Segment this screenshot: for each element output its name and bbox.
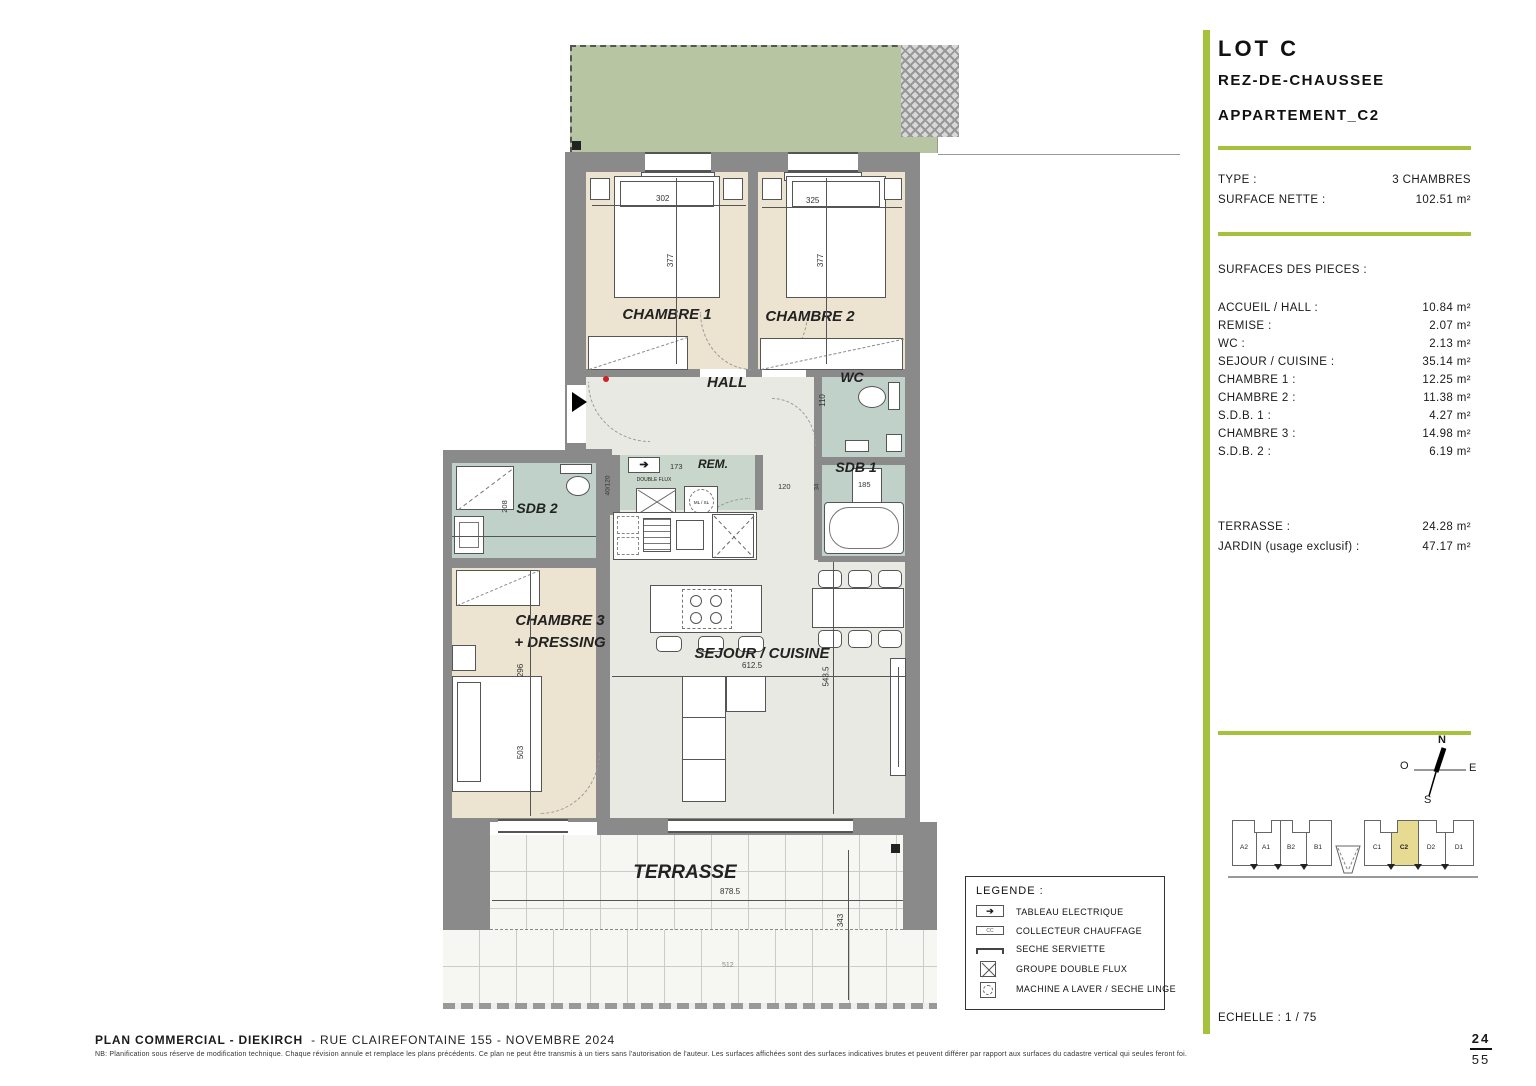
chair-icon — [878, 570, 902, 588]
net-surface-row: SURFACE NETTE : 102.51 m² — [1218, 194, 1471, 206]
compass-west: O — [1400, 760, 1409, 772]
compass-lines — [1400, 738, 1480, 808]
wall-terrace-right — [903, 822, 937, 930]
label-sdb2: SDB 2 — [497, 500, 577, 516]
towel-dryer-icon — [976, 948, 1004, 954]
lot-title: LOT C — [1218, 36, 1299, 62]
surface-label: WC : — [1218, 338, 1245, 350]
nightstand-icon — [590, 178, 610, 200]
divider-line — [1218, 731, 1471, 735]
terrace-label: TERRASSE : — [1218, 521, 1290, 533]
wall-terrace-left — [443, 815, 490, 930]
double-flux-icon — [980, 961, 996, 977]
wardrobe-icon — [456, 570, 540, 606]
dim-rem-depth: 40/120 — [604, 476, 611, 496]
compass-south: S — [1424, 794, 1431, 806]
electrical-panel-icon: ➔ — [976, 905, 1004, 917]
vanity-basin — [459, 522, 479, 548]
surface-value: 11.38 m² — [1423, 392, 1471, 404]
divider-line — [1218, 146, 1471, 150]
block-divider — [1418, 820, 1419, 866]
chair-icon — [878, 630, 902, 648]
kitchen-cabinet — [617, 537, 639, 555]
wardrobe-icon — [760, 338, 903, 370]
legend-title: LEGENDE : — [976, 885, 1044, 897]
dim-chambre3-width: 296 — [516, 664, 525, 677]
surface-value: 6.19 m² — [1429, 446, 1471, 458]
surface-row: S.D.B. 2 : 6.19 m² — [1218, 446, 1471, 458]
dim-chambre1-width: 302 — [656, 194, 669, 203]
site-boundary-line — [938, 154, 1180, 155]
sofa-cushion-line — [683, 759, 725, 760]
label-sejour: SEJOUR / CUISINE — [682, 645, 842, 662]
burner — [710, 612, 722, 624]
type-label: TYPE : — [1218, 174, 1257, 186]
fridge-icon — [712, 514, 754, 558]
toilet-tank-icon — [888, 382, 900, 410]
vanity-icon — [454, 516, 484, 554]
footer-note: NB: Planification sous réserve de modifi… — [95, 1051, 1187, 1058]
kitchen-cabinet — [617, 516, 639, 534]
dim-line — [452, 536, 596, 537]
dim-terrace-width: 878.5 — [720, 887, 740, 896]
footer-title: PLAN COMMERCIAL - DIEKIRCH - RUE CLAIREF… — [95, 1033, 615, 1047]
surface-label: ACCUEIL / HALL : — [1218, 302, 1318, 314]
window-chambre2 — [788, 152, 858, 172]
washer-drum: ML / SL — [689, 489, 714, 514]
net-label: SURFACE NETTE : — [1218, 194, 1326, 206]
surface-value: 12.25 m² — [1422, 374, 1471, 386]
surface-label: S.D.B. 1 : — [1218, 410, 1271, 422]
compass-east: E — [1469, 762, 1476, 774]
label-chambre3-line2: + DRESSING — [480, 634, 640, 651]
level-title: REZ-DE-CHAUSSEE — [1218, 72, 1385, 89]
dim-line — [612, 676, 905, 677]
dim-sdb2-height: 208 — [500, 500, 509, 513]
legend-item: COLLECTEUR CHAUFFAGE — [1016, 926, 1142, 936]
window-chambre1 — [645, 152, 711, 172]
surface-value: 4.27 m² — [1429, 410, 1471, 422]
scale-label: ECHELLE : 1 / 75 — [1218, 1012, 1317, 1024]
corner-shelf-icon — [886, 434, 902, 452]
entry-arrow-icon — [1274, 864, 1282, 870]
sofa-cushion-line — [683, 717, 725, 718]
dim-sdb1-width: 185 — [858, 480, 871, 489]
unit-c1: C1 — [1365, 844, 1389, 851]
x-mark — [981, 962, 997, 978]
page-current: 24 — [1468, 1031, 1494, 1046]
legend-item: TABLEAU ELECTRIQUE — [1016, 907, 1124, 917]
garden-lower-area — [443, 930, 937, 1003]
panel-accent-bar — [1203, 30, 1210, 1034]
dim-line — [833, 562, 834, 814]
wardrobe-icon — [588, 336, 688, 370]
washer-drum — [983, 985, 993, 995]
entry-notch — [1254, 820, 1272, 833]
compass: N E S O — [1400, 738, 1480, 808]
unit-b1: B1 — [1306, 844, 1330, 851]
entry-arrow-icon — [1441, 864, 1449, 870]
washer-dryer-icon — [980, 982, 996, 998]
sofa-icon — [682, 676, 726, 802]
toilet-icon — [566, 476, 590, 496]
dim-line — [530, 570, 531, 816]
apartment-title: APPARTEMENT_C2 — [1218, 107, 1380, 124]
cooktop-icon — [682, 589, 732, 629]
block-left — [1232, 820, 1332, 866]
electrical-panel-icon: ➔ — [628, 457, 660, 473]
unit-a2: A2 — [1234, 844, 1254, 851]
surface-row: REMISE : 2.07 m² — [1218, 320, 1471, 332]
page-number: 24 55 — [1468, 1031, 1494, 1067]
label-sdb1: SDB 1 — [821, 459, 891, 475]
kitchen-sink-icon — [676, 520, 704, 550]
type-row: TYPE : 3 CHAMBRES — [1218, 174, 1471, 186]
wardrobe-diagonal — [457, 570, 540, 606]
bathtub-inner — [829, 507, 899, 549]
legend-item: GROUPE DOUBLE FLUX — [1016, 964, 1127, 974]
burner — [690, 595, 702, 607]
building-key-plan: A2 A1 B2 B1 C1 C2 D2 D1 — [1228, 808, 1478, 888]
drain-symbol — [572, 141, 581, 150]
garden-value: 47.17 m² — [1422, 541, 1471, 553]
surface-label: CHAMBRE 3 : — [1218, 428, 1296, 440]
toilet-icon — [858, 386, 886, 408]
opening-chambre3-terrace — [498, 819, 568, 833]
surface-value: 35.14 m² — [1422, 356, 1471, 368]
label-chambre3-line1: CHAMBRE 3 — [480, 612, 640, 629]
footer-title-bold: PLAN COMMERCIAL - DIEKIRCH — [95, 1033, 303, 1047]
entry-notch — [1380, 820, 1398, 833]
legend-item: SECHE SERVIETTE — [1016, 944, 1105, 954]
compass-north: N — [1438, 734, 1446, 746]
label-terrasse: TERRASSE — [605, 862, 765, 884]
label-rem: REM. — [688, 457, 738, 471]
x-mark — [713, 515, 755, 559]
surface-row: ACCUEIL / HALL : 10.84 m² — [1218, 302, 1471, 314]
toilet-tank-icon — [560, 464, 592, 474]
stool-icon — [656, 636, 682, 652]
divider-line — [1218, 232, 1471, 236]
label-chambre1: CHAMBRE 1 — [597, 306, 737, 323]
chair-icon — [818, 570, 842, 588]
surface-value: 2.07 m² — [1429, 320, 1471, 332]
dim-chambre3-height: 503 — [516, 746, 525, 759]
wall-hall-stub — [586, 449, 612, 457]
surface-value: 10.84 m² — [1422, 302, 1471, 314]
dim-sdb1-side: 34 — [814, 484, 820, 491]
stairwell-icon — [1334, 844, 1362, 876]
tv-line — [898, 667, 899, 767]
burner — [710, 595, 722, 607]
surface-label: REMISE : — [1218, 320, 1272, 332]
label-hall: HALL — [677, 374, 777, 391]
type-value: 3 CHAMBRES — [1392, 174, 1471, 186]
garden-row: JARDIN (usage exclusif) : 47.17 m² — [1218, 541, 1471, 553]
garden-label: JARDIN (usage exclusif) : — [1218, 541, 1360, 553]
surface-value: 2.13 m² — [1429, 338, 1471, 350]
entry-arrow-icon — [1300, 864, 1308, 870]
net-value: 102.51 m² — [1416, 194, 1471, 206]
chair-icon — [848, 630, 872, 648]
label-wc: WC — [827, 369, 877, 385]
nightstand-icon — [452, 645, 476, 671]
dim-line — [848, 850, 849, 1000]
dim-line — [592, 205, 746, 206]
pillow-icon — [457, 682, 481, 782]
nightstand-icon — [723, 178, 743, 200]
entry-notch — [1436, 820, 1454, 833]
nightstand-icon — [884, 178, 902, 200]
dim-rem-width: 173 — [670, 462, 683, 471]
dim-line — [676, 178, 677, 364]
sofa-chaise-icon — [726, 676, 766, 712]
wardrobe-diagonal — [589, 337, 688, 370]
block-divider — [1280, 820, 1281, 866]
wall-sdb2-chambre3-divider — [452, 558, 596, 568]
hatch-area — [901, 45, 959, 137]
surface-label: S.D.B. 2 : — [1218, 446, 1271, 458]
entrance-arrow-icon — [572, 392, 587, 412]
wall-rem-right — [755, 455, 763, 510]
surface-row: SEJOUR / CUISINE : 35.14 m² — [1218, 356, 1471, 368]
wall-sdb1-bottom — [818, 556, 905, 562]
surface-label: SEJOUR / CUISINE : — [1218, 356, 1334, 368]
dim-line — [762, 207, 902, 208]
garden-area — [570, 45, 938, 153]
dining-table-icon — [812, 588, 904, 628]
sink-icon — [845, 440, 869, 452]
double-flux-unit-icon — [636, 488, 676, 514]
drain-symbol — [891, 844, 900, 853]
legend-item: MACHINE A LAVER / SECHE LINGE — [1016, 984, 1176, 994]
surface-label: CHAMBRE 1 : — [1218, 374, 1296, 386]
unit-a1: A1 — [1256, 844, 1276, 851]
site-edge-band — [443, 1003, 937, 1009]
info-panel: LOT C REZ-DE-CHAUSSEE APPARTEMENT_C2 TYP… — [1196, 0, 1536, 1086]
dim-chambre2-width: 325 — [806, 196, 819, 205]
heating-collector-icon: CC — [976, 926, 1004, 935]
terrace-row: TERRASSE : 24.28 m² — [1218, 521, 1471, 533]
wall-rem-left — [610, 455, 620, 515]
nightstand-icon — [762, 178, 782, 200]
surfaces-title: SURFACES DES PIECES : — [1218, 264, 1367, 276]
entry-arrow-icon — [1387, 864, 1395, 870]
unit-d1: D1 — [1446, 844, 1472, 851]
dim-corridor: 120 — [778, 482, 791, 491]
surface-row: CHAMBRE 2 : 11.38 m² — [1218, 392, 1471, 404]
surface-row: WC : 2.13 m² — [1218, 338, 1471, 350]
dim-chambre2-height: 377 — [816, 254, 825, 267]
unit-b2: B2 — [1280, 844, 1302, 851]
surface-row: CHAMBRE 3 : 14.98 m² — [1218, 428, 1471, 440]
dim-site: 512 — [722, 962, 734, 969]
terrace-value: 24.28 m² — [1422, 521, 1471, 533]
surface-value: 14.98 m² — [1422, 428, 1471, 440]
label-chambre2: CHAMBRE 2 — [740, 308, 880, 325]
dim-terrace-height: 343 — [836, 914, 845, 927]
wardrobe-diagonal — [761, 339, 904, 370]
footer-title-rest: - RUE CLAIREFONTAINE 155 - NOVEMBRE 2024 — [311, 1033, 615, 1047]
page-divider — [1470, 1048, 1492, 1050]
dim-wc-height: 110 — [818, 394, 827, 407]
unit-d2: D2 — [1419, 844, 1443, 851]
ground-line — [1228, 876, 1478, 878]
bathtub-icon — [824, 502, 904, 554]
dim-sejour-width: 612.5 — [742, 661, 762, 670]
double-flux-label: DOUBLE FLUX — [636, 477, 672, 483]
legend-box: LEGENDE : ➔ TABLEAU ELECTRIQUE CC COLLEC… — [965, 876, 1165, 1010]
dim-sejour-height: 543.5 — [822, 666, 831, 686]
dim-line — [826, 178, 827, 364]
chair-icon — [848, 570, 872, 588]
entry-arrow-icon — [1414, 864, 1422, 870]
unit-c2: C2 — [1392, 844, 1416, 851]
dim-chambre1-height: 377 — [666, 254, 675, 267]
burner — [690, 612, 702, 624]
surface-label: CHAMBRE 2 : — [1218, 392, 1296, 404]
kitchen-grille-icon — [643, 518, 671, 552]
footer: PLAN COMMERCIAL - DIEKIRCH - RUE CLAIREF… — [0, 1025, 1536, 1086]
entry-notch — [1292, 820, 1310, 833]
surface-row: CHAMBRE 1 : 12.25 m² — [1218, 374, 1471, 386]
surface-row: S.D.B. 1 : 4.27 m² — [1218, 410, 1471, 422]
page-total: 55 — [1468, 1052, 1494, 1067]
entry-arrow-icon — [1250, 864, 1258, 870]
dim-line — [492, 900, 903, 901]
opening-sejour-terrace — [668, 819, 853, 833]
